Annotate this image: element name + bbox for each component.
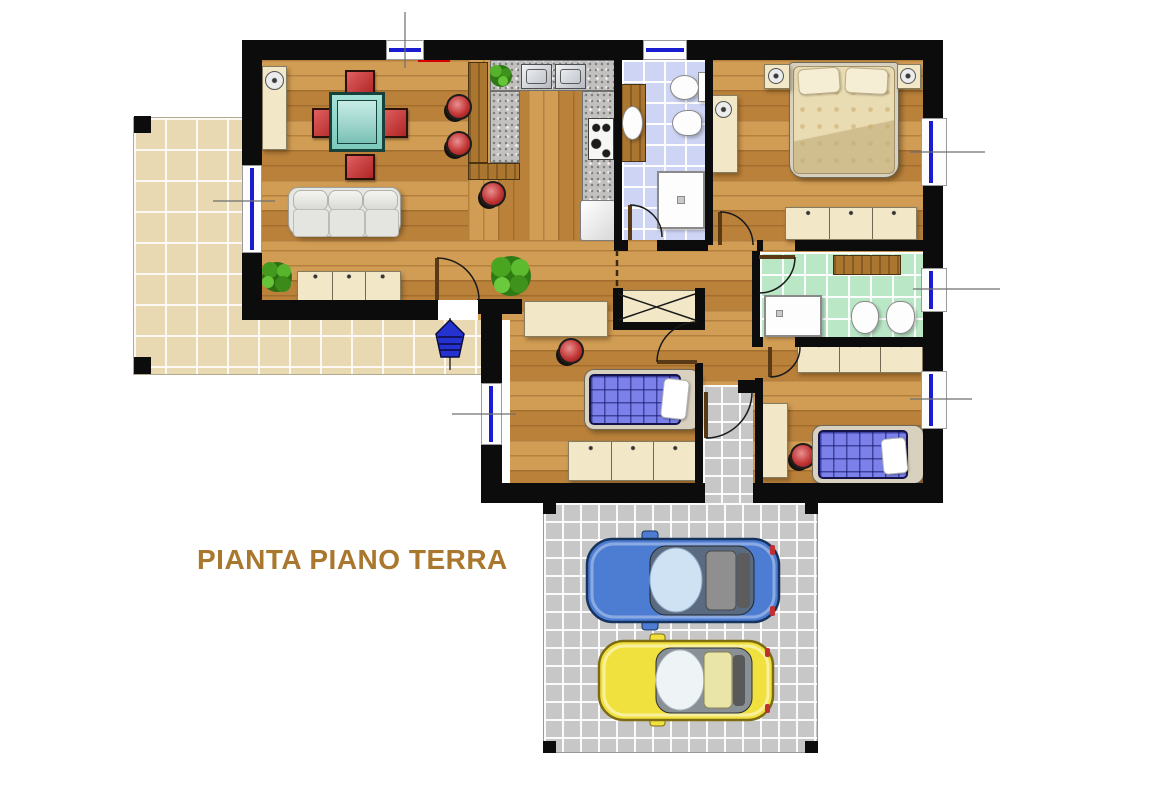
car-yellow bbox=[599, 634, 773, 726]
foliage bbox=[491, 257, 511, 277]
foliage bbox=[275, 276, 291, 292]
garden-lantern bbox=[436, 318, 464, 370]
foliage bbox=[510, 275, 528, 293]
floor-plan-canvas: PIANTA PIANO TERRA bbox=[0, 0, 1170, 785]
car-roof bbox=[706, 551, 736, 610]
plant-kitchen bbox=[490, 65, 512, 87]
foliage bbox=[498, 76, 508, 86]
plan-title: PIANTA PIANO TERRA bbox=[197, 544, 508, 576]
lantern-body bbox=[436, 320, 464, 357]
car-windshield bbox=[650, 548, 702, 612]
foliage bbox=[262, 262, 278, 278]
car-taillight bbox=[765, 704, 770, 713]
closet-x-mark bbox=[618, 294, 695, 320]
door-swing-arc bbox=[759, 257, 795, 293]
door-leaves bbox=[437, 205, 795, 438]
door-swing-arc bbox=[657, 322, 697, 362]
foliage bbox=[511, 259, 529, 277]
car-taillight bbox=[770, 606, 775, 616]
dimension-lines bbox=[213, 12, 1000, 414]
foliage bbox=[277, 264, 291, 278]
plan-overlay bbox=[0, 0, 1170, 785]
door-swing-arc bbox=[706, 392, 752, 438]
door-swing-arc bbox=[437, 258, 479, 300]
foliage bbox=[490, 65, 502, 77]
car-rear-window bbox=[737, 553, 750, 608]
car-rear-window bbox=[733, 655, 745, 706]
door-swing-arcs bbox=[437, 205, 800, 438]
car-roof bbox=[704, 652, 732, 708]
door-swing-arc bbox=[720, 212, 753, 245]
car-blue bbox=[587, 531, 779, 630]
plant-living-room bbox=[262, 262, 292, 292]
foliage bbox=[262, 276, 274, 288]
plant-hallway-bush bbox=[491, 256, 531, 296]
car-taillight bbox=[770, 545, 775, 555]
door-swing-arc bbox=[630, 205, 662, 237]
foliage bbox=[494, 277, 510, 293]
door-swing-arc bbox=[770, 347, 800, 377]
car-taillight bbox=[765, 648, 770, 657]
car-windshield bbox=[656, 650, 704, 710]
